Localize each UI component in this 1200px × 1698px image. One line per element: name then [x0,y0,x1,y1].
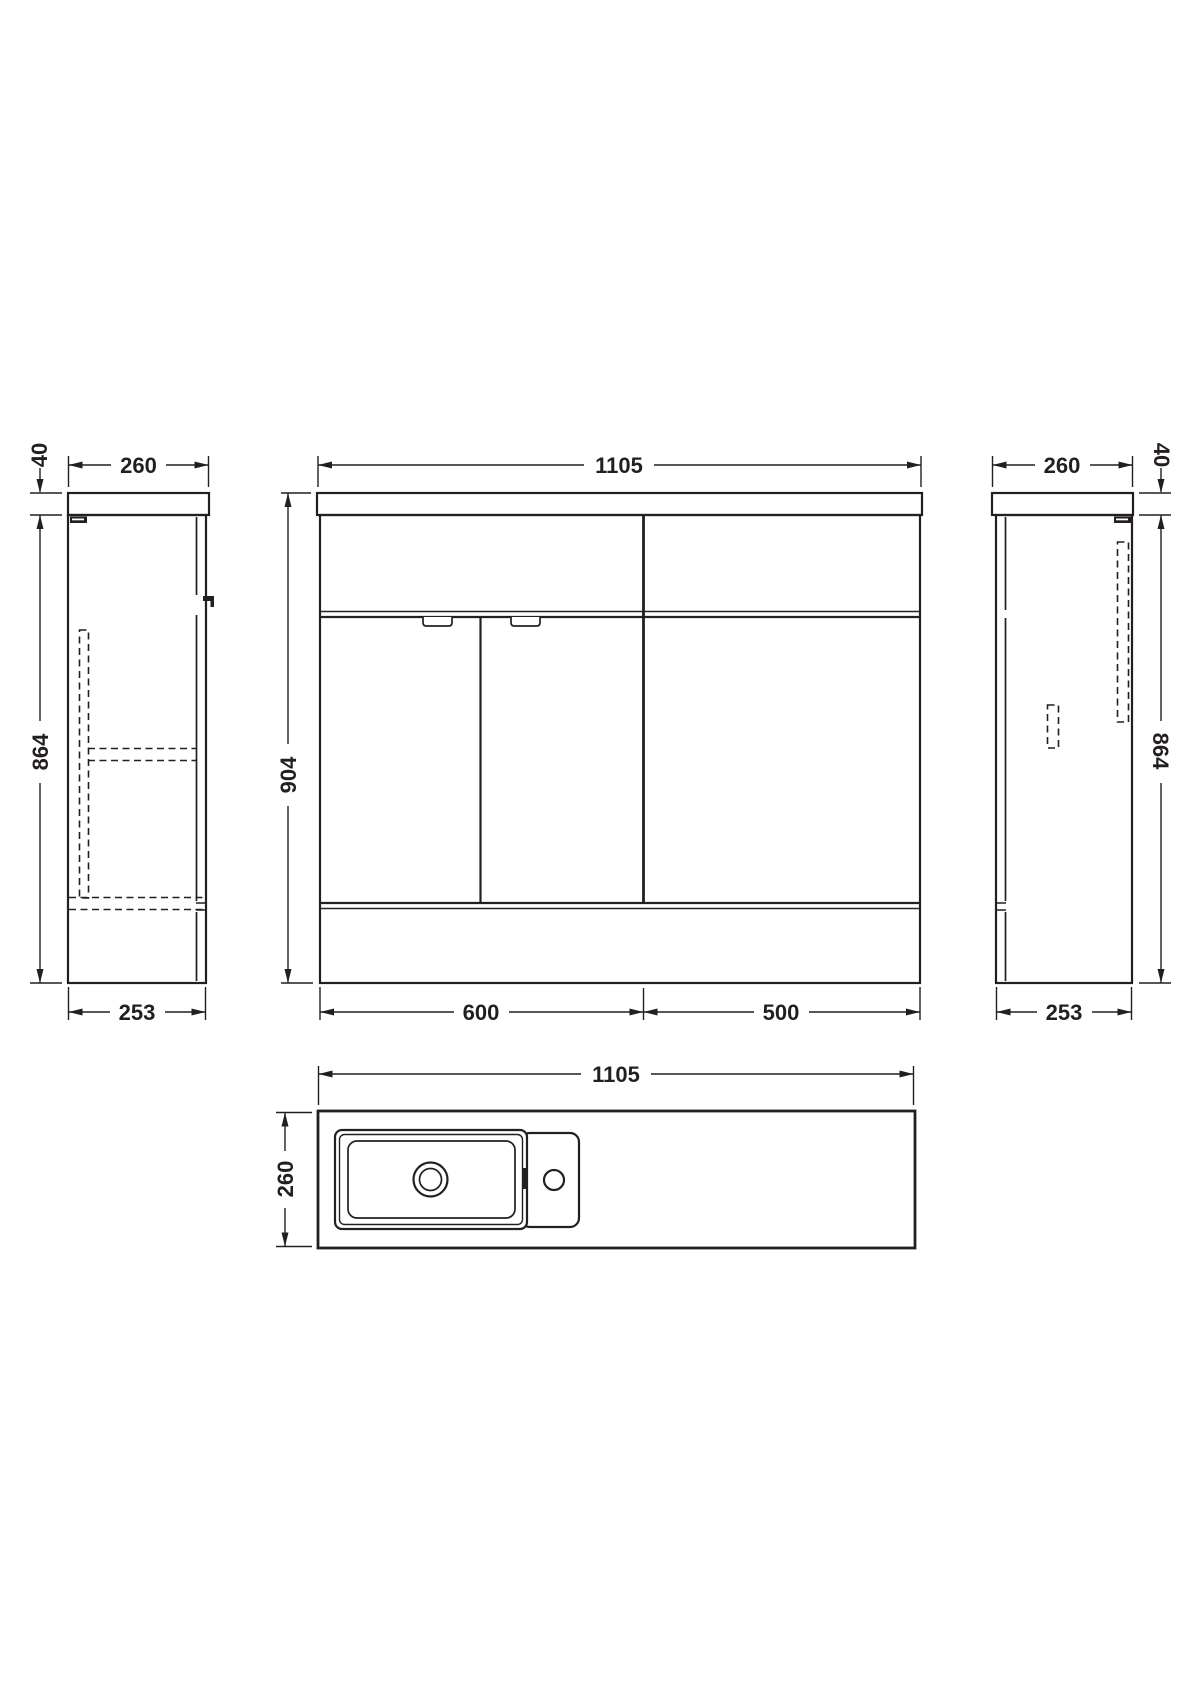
hidden-bracket-outline [1048,705,1059,748]
arrowhead [1119,462,1133,469]
arrowhead [997,1009,1011,1016]
arrowhead [993,462,1007,469]
dim-right-cabinet-height: 864 [1139,515,1175,983]
extension-lines [30,493,62,515]
right-side-view: 260 40 864 253 [992,443,1175,1025]
dimension-drawing-page: 260 40 864 253 [0,0,1200,1698]
dim-right-cabinet-depth: 253 [997,987,1132,1025]
dim-front-wc-width: 500 [644,987,921,1025]
hidden-waste-pipe-channel [80,630,89,898]
dim-label: 253 [119,1000,156,1025]
plan-view: 1105 260 [271,1061,915,1248]
dim-label: 1105 [595,453,643,478]
dim-left-worktop-thickness: 40 [27,443,62,515]
dim-right-worktop-thickness: 40 [1139,443,1174,515]
hidden-shelf-lines [88,749,196,761]
dim-label: 864 [28,733,53,770]
extension-lines [281,493,313,983]
dim-front-total-height: 904 [274,493,313,983]
basin-deck-joint [523,1168,526,1189]
arrowhead [37,479,44,493]
arrowhead [644,1009,658,1016]
arrowhead [69,1009,83,1016]
dim-left-worktop-depth: 260 [69,452,209,487]
arrowhead [1158,515,1165,529]
bracket-slot [1116,519,1128,521]
arrowhead [282,1113,289,1127]
dim-left-cabinet-depth: 253 [69,987,206,1025]
arrowhead [1158,969,1165,983]
dim-front-vanity-width: 600 [320,987,644,1025]
dim-front-total-width: 1105 [318,452,921,487]
arrowhead [282,1233,289,1247]
cabinet-front-body [320,515,920,983]
left-side-view: 260 40 864 253 [26,443,214,1025]
waste-drain-inner [420,1169,442,1191]
arrowhead [630,1009,644,1016]
dim-label: 260 [120,453,157,478]
concealed-cistern-outline [1118,542,1129,722]
dim-left-cabinet-height: 864 [26,515,62,983]
dim-label: 600 [463,1000,500,1025]
arrowhead [37,515,44,529]
arrowhead [285,969,292,983]
arrowhead [1158,479,1165,493]
dim-label: 500 [763,1000,800,1025]
bracket-slot [72,519,84,521]
cabinet-side-body [996,515,1132,983]
dim-label: 40 [1149,443,1174,467]
arrowhead [1118,1009,1132,1016]
dim-label: 253 [1046,1000,1083,1025]
dim-label: 1105 [592,1062,640,1087]
dim-label: 864 [1148,733,1173,770]
arrowhead [69,462,83,469]
arrowhead [192,1009,206,1016]
dim-label: 40 [27,443,52,467]
arrowhead [195,462,209,469]
tap-hole [544,1170,564,1190]
front-view: 1105 904 600 500 [274,452,922,1025]
arrowhead [319,1071,333,1078]
arrowhead [906,1009,920,1016]
extension-lines [1139,493,1171,515]
arrowhead [37,969,44,983]
door-handle-right [511,617,540,626]
dim-right-worktop-depth: 260 [993,452,1133,487]
plinth-setback-ticks [996,903,1006,910]
dimension-drawing: 260 40 864 253 [0,0,1200,1698]
dim-plan-total-width: 1105 [319,1061,914,1105]
dim-label: 260 [273,1161,298,1198]
arrowhead [285,493,292,507]
worktop-front [317,493,922,515]
dim-label: 904 [276,756,301,793]
arrowhead [907,462,921,469]
hidden-plinth-lines [69,898,205,910]
door-handle-left [423,617,452,626]
door-handle-side-tip [211,596,215,607]
dim-plan-worktop-depth: 260 [271,1113,312,1247]
arrowhead [900,1071,914,1078]
worktop-side-profile [992,493,1133,515]
arrowhead [318,462,332,469]
worktop-side-profile [68,493,209,515]
arrowhead [320,1009,334,1016]
dim-label: 260 [1044,453,1081,478]
